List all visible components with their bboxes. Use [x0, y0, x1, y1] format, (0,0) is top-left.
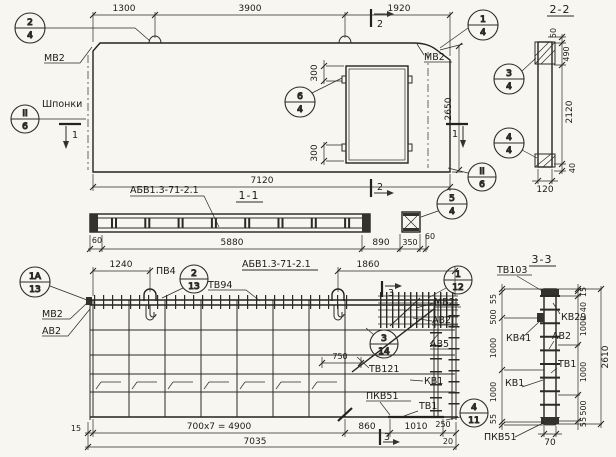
dim-55: 55 — [489, 414, 498, 424]
svg-text:12: 12 — [452, 283, 463, 293]
opening-dims: 300 300 — [310, 60, 344, 165]
dim-2610: 2610 — [601, 345, 611, 368]
section-mark-label: 2 — [377, 182, 383, 193]
svg-text:КВ1: КВ1 — [505, 378, 524, 389]
label-tv1-section: ТВ1 — [551, 359, 576, 373]
svg-text:3-3: 3-3 — [532, 253, 553, 266]
dim-1010: 1010 — [405, 422, 428, 432]
dim-1860-group: 1860 — [335, 260, 458, 296]
section-mark-1-left: 1 — [59, 124, 81, 149]
section-2-2-title: 2-2 — [547, 3, 574, 16]
svg-text:5: 5 — [449, 194, 455, 204]
svg-text:МВ2: МВ2 — [434, 297, 455, 308]
label-kv41: КВ41 — [506, 321, 540, 344]
label-av2-section: АВ2 — [549, 331, 571, 349]
label-tv121: ТВ121 — [357, 357, 406, 375]
dim-120: 120 — [536, 185, 553, 195]
dim-7035: 7035 — [244, 437, 267, 447]
dim-40: 40 — [568, 163, 577, 173]
svg-text:1А: 1А — [29, 272, 42, 282]
dim-7120: 7120 — [251, 176, 274, 186]
dim-2120: 2120 — [565, 100, 575, 123]
svg-text:2-2: 2-2 — [550, 3, 571, 16]
dim-890: 890 — [372, 238, 389, 248]
dim-5880: 5880 — [221, 238, 244, 248]
svg-text:МВ2: МВ2 — [424, 52, 445, 63]
section-1-1-title: 1-1 — [236, 189, 263, 202]
section-3-3-total-dim: 2610 — [598, 286, 611, 428]
dim-1240-group: 1240 — [90, 260, 153, 296]
mesh-grid — [86, 297, 458, 420]
svg-text:АБВ1.3-71-2.1: АБВ1.3-71-2.1 — [130, 185, 199, 196]
svg-text:АВ2: АВ2 — [42, 326, 61, 337]
top-dim-chain: 1300 3900 1920 — [90, 4, 453, 56]
svg-text:КВ41: КВ41 — [506, 333, 531, 344]
section-3-3-title: 3-3 — [529, 253, 556, 266]
label-tv1-plan: ТВ1 — [404, 401, 437, 416]
label-kv1-plan: КВ1 — [410, 376, 443, 387]
dim-20: 20 — [443, 437, 453, 446]
dim-490: 490 — [562, 46, 571, 61]
dim-300-top: 300 — [310, 64, 320, 81]
dim-2650: 2650 — [444, 97, 454, 120]
plan-title: АБВ1.3-71-2.1 — [242, 259, 318, 270]
section-2-2-width-dim: 120 — [532, 169, 558, 195]
svg-text:14: 14 — [378, 347, 390, 357]
callout-3-4: 3 4 — [494, 58, 536, 94]
slab-cross-section — [90, 214, 370, 232]
dim-300-bottom: 300 — [310, 144, 320, 161]
svg-text:4: 4 — [449, 207, 455, 217]
panel-outline — [93, 43, 450, 172]
dim-750: 750 — [332, 352, 347, 361]
svg-text:АБВ1.3-71-2.1: АБВ1.3-71-2.1 — [242, 259, 311, 270]
callout-6-4: 6 4 — [285, 78, 342, 117]
section-mark-label: 3 — [388, 288, 394, 299]
svg-text:4: 4 — [506, 82, 512, 92]
section-3-3-left-chain: 55 500 1000 1000 55 — [489, 284, 556, 430]
section-3-3-width-dim: 70 — [538, 426, 562, 448]
svg-text:4: 4 — [471, 403, 477, 413]
callout-4-4: 4 4 — [494, 128, 537, 158]
section-3-3-right-chain: 15 40 1000 1000 500 55 — [556, 284, 602, 430]
svg-text:ТВ94: ТВ94 — [207, 280, 232, 291]
dim-1000: 1000 — [579, 362, 588, 382]
label-pv4: ПВ4 — [156, 266, 176, 277]
label-mv2-right: МВ2 — [417, 44, 452, 63]
svg-text:МВ2: МВ2 — [42, 309, 63, 320]
dim-700x7: 700x7 = 4900 — [187, 422, 252, 432]
dim-1860: 1860 — [357, 260, 380, 270]
svg-text:АВ2: АВ2 — [552, 331, 571, 342]
svg-text:11: 11 — [468, 416, 479, 426]
panel-plan-view: 1300 3900 1920 7120 300 300 2650 — [11, 4, 498, 197]
svg-text:6: 6 — [479, 180, 485, 190]
section-3-3-view: 3-3 55 500 1000 1000 55 15 40 1000 — [484, 253, 611, 448]
dim-3900: 3900 — [239, 4, 262, 14]
svg-text:КВ1: КВ1 — [424, 376, 443, 387]
svg-text:13: 13 — [188, 282, 199, 292]
dim-250: 250 — [435, 420, 450, 429]
svg-text:1: 1 — [455, 270, 461, 280]
section-mark-label: 2 — [377, 19, 383, 30]
lap-hooks — [96, 382, 337, 389]
dim-15: 15 — [71, 424, 81, 433]
dim-60-left: 60 — [92, 236, 102, 245]
svg-text:ТВ121: ТВ121 — [368, 364, 399, 375]
section-2-2-view: 2-2 50 490 2120 40 120 3 4 — [494, 3, 577, 195]
svg-text:6: 6 — [22, 122, 28, 132]
dim-500: 500 — [579, 400, 588, 415]
dim-860: 860 — [358, 422, 375, 432]
section-1-1-view: 1-1 АБВ1.3-71-2.1 60 5880 890 350 — [87, 185, 467, 252]
dim-40: 40 — [579, 302, 588, 312]
section-2-2-slab — [538, 42, 552, 167]
svg-text:II: II — [479, 167, 484, 177]
dim-500: 500 — [489, 309, 498, 324]
callout-5-4: 5 4 — [421, 189, 467, 219]
dim-55: 55 — [579, 417, 588, 427]
bottom-dim-chain: 15 700x7 = 4900 860 1010 250 20 7035 — [71, 419, 459, 450]
dim-15: 15 — [579, 287, 588, 297]
svg-text:1: 1 — [480, 15, 486, 25]
label-mv2-plan-left: МВ2 — [42, 303, 87, 320]
panel-opening — [342, 66, 412, 163]
svg-text:4: 4 — [506, 146, 512, 156]
svg-text:3: 3 — [506, 69, 512, 79]
dim-60-right: 60 — [425, 232, 435, 241]
svg-text:4: 4 — [27, 31, 33, 41]
label-kv1-section: КВ1 — [505, 378, 543, 389]
svg-text:13: 13 — [29, 285, 40, 295]
label-pkv51-plan: ПКВ51 — [366, 391, 411, 415]
svg-text:4: 4 — [297, 105, 303, 115]
svg-text:ТВ103: ТВ103 — [496, 265, 527, 276]
svg-text:ПКВ51: ПКВ51 — [366, 391, 399, 402]
dim-1240: 1240 — [110, 260, 133, 270]
dim-50: 50 — [549, 28, 558, 38]
reinforcement-plan-view: АБВ1.3-71-2.1 1240 1860 750 3 — [20, 259, 488, 450]
dim-1300: 1300 — [113, 4, 136, 14]
callout-2-4: 2 4 — [15, 13, 150, 43]
svg-text:2: 2 — [27, 18, 33, 28]
label-shponki: Шпонки — [42, 99, 82, 110]
svg-text:4: 4 — [506, 133, 512, 143]
end-block-detail — [402, 212, 420, 232]
engineering-drawing-sheet: 1300 3900 1920 7120 300 300 2650 — [0, 0, 616, 457]
svg-text:6: 6 — [297, 92, 303, 102]
section-3-3-slab — [537, 289, 559, 424]
svg-text:3: 3 — [381, 334, 387, 344]
svg-text:АВ2: АВ2 — [432, 315, 451, 326]
dim-1000: 1000 — [489, 382, 498, 402]
label-tv94: ТВ94 — [207, 280, 260, 301]
svg-text:II: II — [22, 109, 27, 119]
section-mark-2-bottom: 2 — [371, 179, 394, 197]
callout-1a-13: 1А 13 — [20, 267, 87, 300]
svg-text:1-1: 1-1 — [239, 189, 260, 202]
callout-3-14: 3 14 — [366, 328, 398, 358]
svg-text:4: 4 — [480, 28, 486, 38]
svg-text:ПКВ51: ПКВ51 — [484, 432, 517, 443]
section-mark-label: 1 — [452, 129, 458, 140]
svg-text:2: 2 — [191, 269, 197, 279]
dim-1920: 1920 — [388, 4, 411, 14]
drawing-canvas: 1300 3900 1920 7120 300 300 2650 — [0, 0, 616, 457]
svg-text:ТВ1: ТВ1 — [418, 401, 437, 412]
dim-750-group: 750 — [319, 352, 364, 368]
dim-70: 70 — [544, 438, 556, 448]
dim-1000: 1000 — [489, 338, 498, 358]
section-1-1-dims: 60 5880 890 350 60 — [87, 232, 435, 252]
label-mv2-left: МВ2 — [44, 47, 92, 64]
section-mark-label: 1 — [72, 130, 78, 141]
dim-350: 350 — [402, 238, 417, 247]
svg-text:КВ29: КВ29 — [561, 312, 586, 323]
svg-text:ТВ1: ТВ1 — [557, 359, 576, 370]
callout-ii-6-right: II 6 — [448, 163, 496, 191]
svg-text:МВ2: МВ2 — [44, 53, 65, 64]
section-1-1-label: АБВ1.3-71-2.1 — [130, 185, 219, 227]
dim-55: 55 — [489, 294, 498, 304]
